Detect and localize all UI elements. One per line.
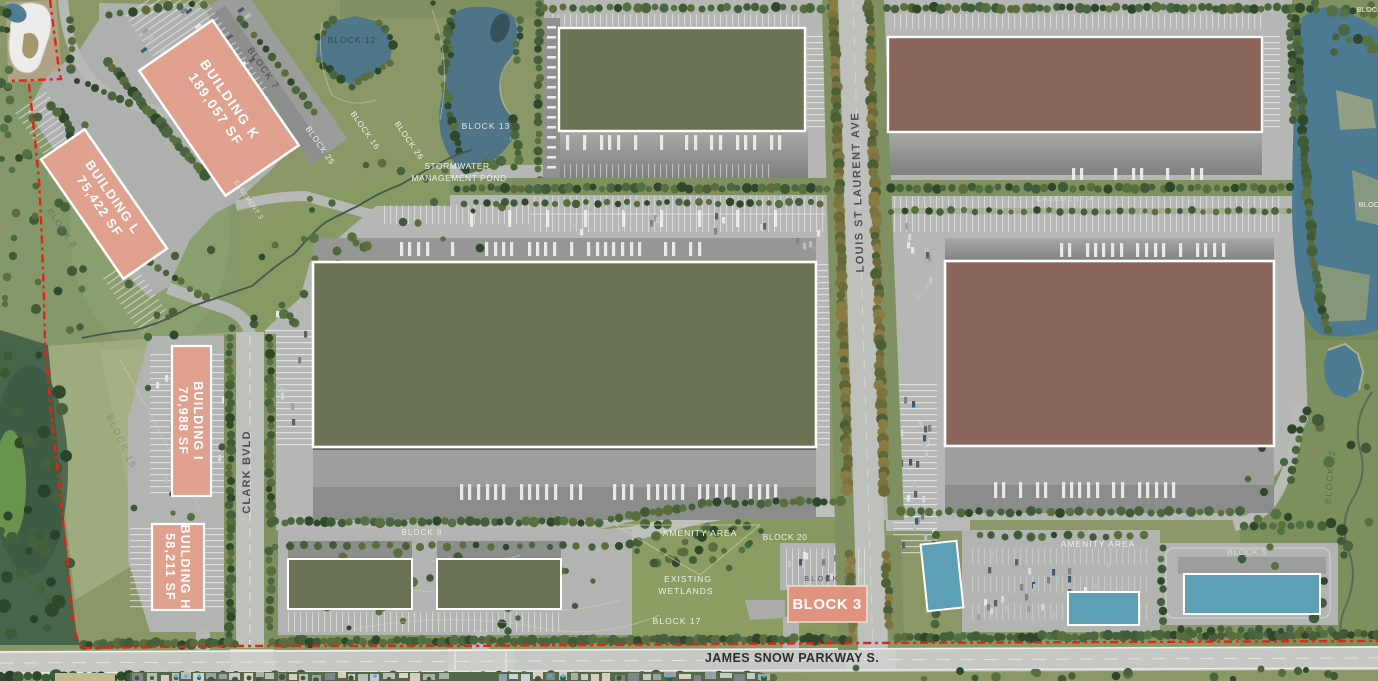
svg-text:EASEMENT 4: EASEMENT 4 [1036, 194, 1093, 203]
svg-text:BLOCK 3: BLOCK 3 [804, 574, 850, 583]
svg-text:BLOCK 12: BLOCK 12 [328, 35, 377, 45]
svg-text:BUILDING H: BUILDING H [178, 525, 192, 610]
svg-text:CLARK BVLD: CLARK BVLD [241, 430, 253, 514]
svg-text:BLOCK 13: BLOCK 13 [462, 121, 511, 131]
svg-text:BLOCK 8: BLOCK 8 [402, 528, 443, 537]
svg-text:BLOC: BLOC [1359, 200, 1378, 209]
svg-text:EXISTING: EXISTING [664, 574, 712, 584]
svg-text:58,211 SF: 58,211 SF [163, 533, 177, 601]
svg-text:AMENITY AREA: AMENITY AREA [1061, 539, 1136, 549]
svg-text:BLOCK 3: BLOCK 3 [792, 596, 861, 613]
svg-text:BLOCK 5: BLOCK 5 [1227, 547, 1266, 557]
svg-text:BLOCK 20: BLOCK 20 [763, 532, 808, 542]
svg-text:BLOC: BLOC [1357, 5, 1378, 14]
svg-text:WETLANDS: WETLANDS [658, 586, 713, 596]
svg-text:BLOCK 17: BLOCK 17 [653, 616, 702, 626]
svg-text:AMENITY AREA: AMENITY AREA [663, 528, 738, 538]
svg-text:70,988 SF: 70,988 SF [176, 387, 190, 455]
svg-text:BUILDING I: BUILDING I [191, 381, 205, 460]
svg-text:STORMWATER: STORMWATER [424, 161, 489, 171]
svg-text:MANAGEMENT POND: MANAGEMENT POND [411, 173, 506, 183]
svg-text:JAMES SNOW PARKWAY S.: JAMES SNOW PARKWAY S. [705, 651, 879, 665]
